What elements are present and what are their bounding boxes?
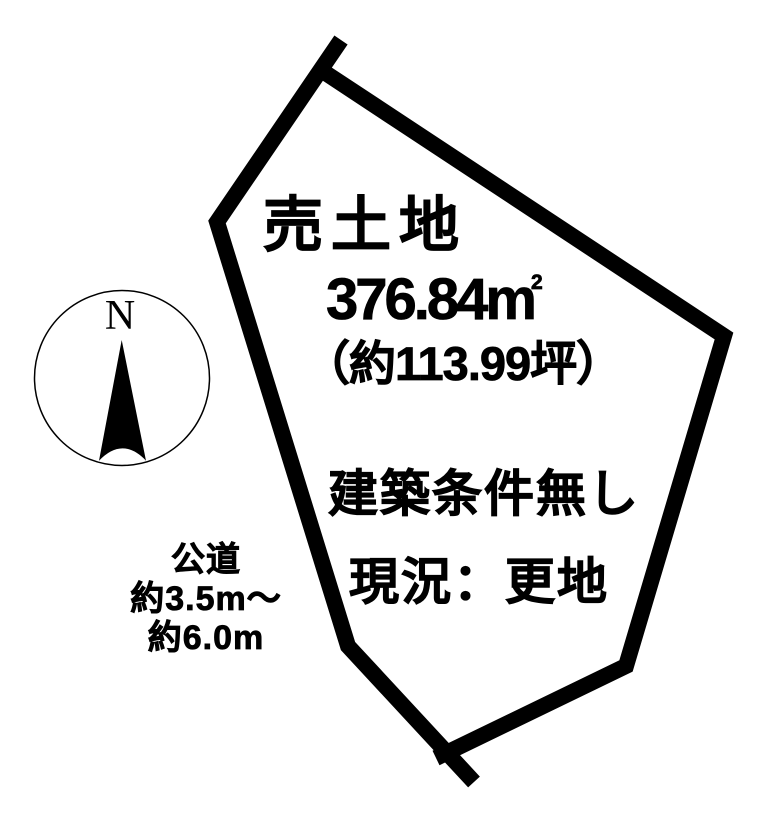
- road-width-max: 約6.0m: [100, 619, 312, 658]
- plot-title: 売土地: [263, 196, 467, 256]
- plot-outline-right-boundary: [321, 70, 724, 758]
- road-width-min: 約3.5m～: [100, 580, 312, 619]
- plot-area-value: 376.84: [326, 267, 485, 332]
- land-plot-diagram: N 売土地 376.84m2 （約113.99坪） 建築条件無し 現況：更地 公…: [0, 0, 773, 819]
- plot-area-unit-exponent: 2: [531, 254, 543, 312]
- road-name: 公道: [100, 541, 312, 580]
- road-width-annotation: 公道 約3.5m～ 約6.0m: [100, 541, 312, 658]
- plot-area-tsubo: （約113.99坪）: [303, 339, 622, 389]
- plot-area-sqm: 376.84m2: [326, 271, 543, 342]
- building-condition-label: 建築条件無し: [328, 468, 640, 520]
- current-status-label: 現況：更地: [349, 556, 609, 608]
- compass: N: [33, 288, 211, 470]
- compass-north-label: N: [105, 293, 135, 339]
- plot-area-unit: m: [485, 267, 534, 332]
